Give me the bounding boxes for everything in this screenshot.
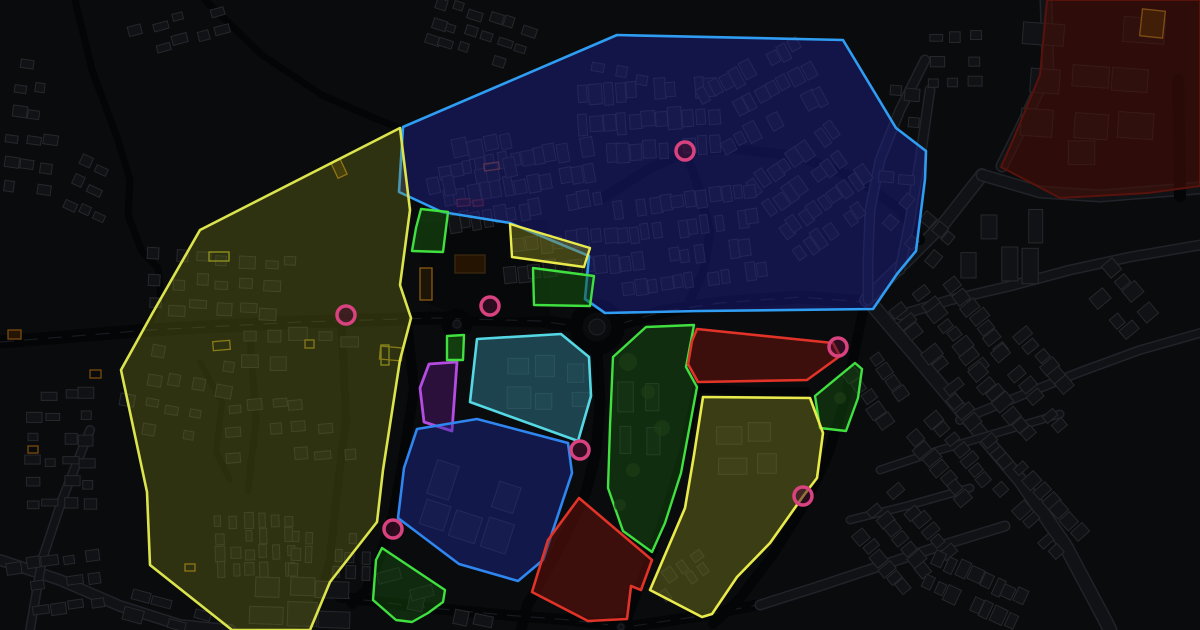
building <box>930 34 943 41</box>
building <box>65 433 77 444</box>
building <box>40 554 58 566</box>
building <box>65 498 78 508</box>
building <box>66 390 78 398</box>
building <box>20 159 34 170</box>
map-marker[interactable] <box>337 306 355 324</box>
map-marker[interactable] <box>571 441 589 459</box>
building <box>1002 247 1018 281</box>
building <box>14 85 27 94</box>
roundabout-island <box>589 319 605 335</box>
building <box>43 134 59 146</box>
building <box>78 387 94 398</box>
building <box>969 57 980 66</box>
building <box>318 611 350 628</box>
building <box>88 572 101 584</box>
building <box>904 88 920 102</box>
building <box>66 575 83 586</box>
building <box>83 481 93 490</box>
building <box>41 392 57 400</box>
building <box>930 57 944 67</box>
map-view[interactable] <box>0 0 1200 630</box>
map-marker[interactable] <box>481 297 499 315</box>
map-marker[interactable] <box>676 142 694 160</box>
building <box>503 266 517 283</box>
building <box>950 32 961 43</box>
building <box>79 459 95 468</box>
building <box>27 110 40 120</box>
building <box>65 476 80 486</box>
building <box>928 79 938 87</box>
building <box>362 567 370 581</box>
roundabout-island <box>453 320 461 328</box>
building <box>4 180 15 192</box>
park-blob <box>619 353 637 371</box>
accent-building <box>8 330 21 339</box>
building <box>28 433 38 440</box>
building <box>362 552 370 565</box>
building <box>20 59 34 69</box>
map-marker[interactable] <box>794 487 812 505</box>
building <box>961 253 976 278</box>
building <box>37 184 52 195</box>
accent-building <box>455 255 485 273</box>
zone-fill <box>447 335 464 360</box>
building <box>5 134 18 143</box>
map-marker[interactable] <box>384 520 402 538</box>
building <box>981 215 997 239</box>
building <box>25 455 40 464</box>
building <box>81 411 91 420</box>
building <box>32 605 49 616</box>
building <box>39 163 52 174</box>
building <box>1029 210 1043 243</box>
park-blob <box>654 420 670 436</box>
building <box>6 562 22 576</box>
building <box>346 565 356 578</box>
building <box>26 556 40 569</box>
building <box>27 501 39 509</box>
zone-plot-green-c[interactable] <box>447 335 464 360</box>
building <box>85 549 100 562</box>
building <box>63 457 79 464</box>
building <box>12 105 28 118</box>
building <box>968 76 982 86</box>
accent-building <box>420 268 432 300</box>
map-marker[interactable] <box>829 338 847 356</box>
road <box>700 388 806 392</box>
building <box>1022 248 1038 283</box>
park-blob <box>614 499 626 511</box>
map-canvas[interactable] <box>0 0 1200 630</box>
building <box>63 555 75 565</box>
building <box>4 156 20 168</box>
building <box>91 598 104 608</box>
building <box>971 31 982 40</box>
park-blob <box>626 463 640 477</box>
building <box>908 117 919 127</box>
building <box>147 247 159 259</box>
building <box>42 499 58 506</box>
zone-plot-green-b[interactable] <box>533 268 594 306</box>
building <box>35 82 46 92</box>
building <box>26 477 39 486</box>
building <box>45 459 55 467</box>
park-blob <box>641 385 655 399</box>
building <box>148 274 160 286</box>
building <box>68 599 84 609</box>
building <box>453 609 469 626</box>
roundabout-island <box>618 624 624 630</box>
building <box>948 78 958 86</box>
building <box>27 412 42 422</box>
building <box>46 413 60 420</box>
building <box>78 435 93 446</box>
building <box>27 136 42 146</box>
park-blob <box>834 392 846 404</box>
building <box>890 85 902 96</box>
zone-plot-purple[interactable] <box>420 362 457 431</box>
building <box>197 30 210 42</box>
building <box>84 499 96 509</box>
building <box>50 602 66 615</box>
building <box>30 580 44 590</box>
